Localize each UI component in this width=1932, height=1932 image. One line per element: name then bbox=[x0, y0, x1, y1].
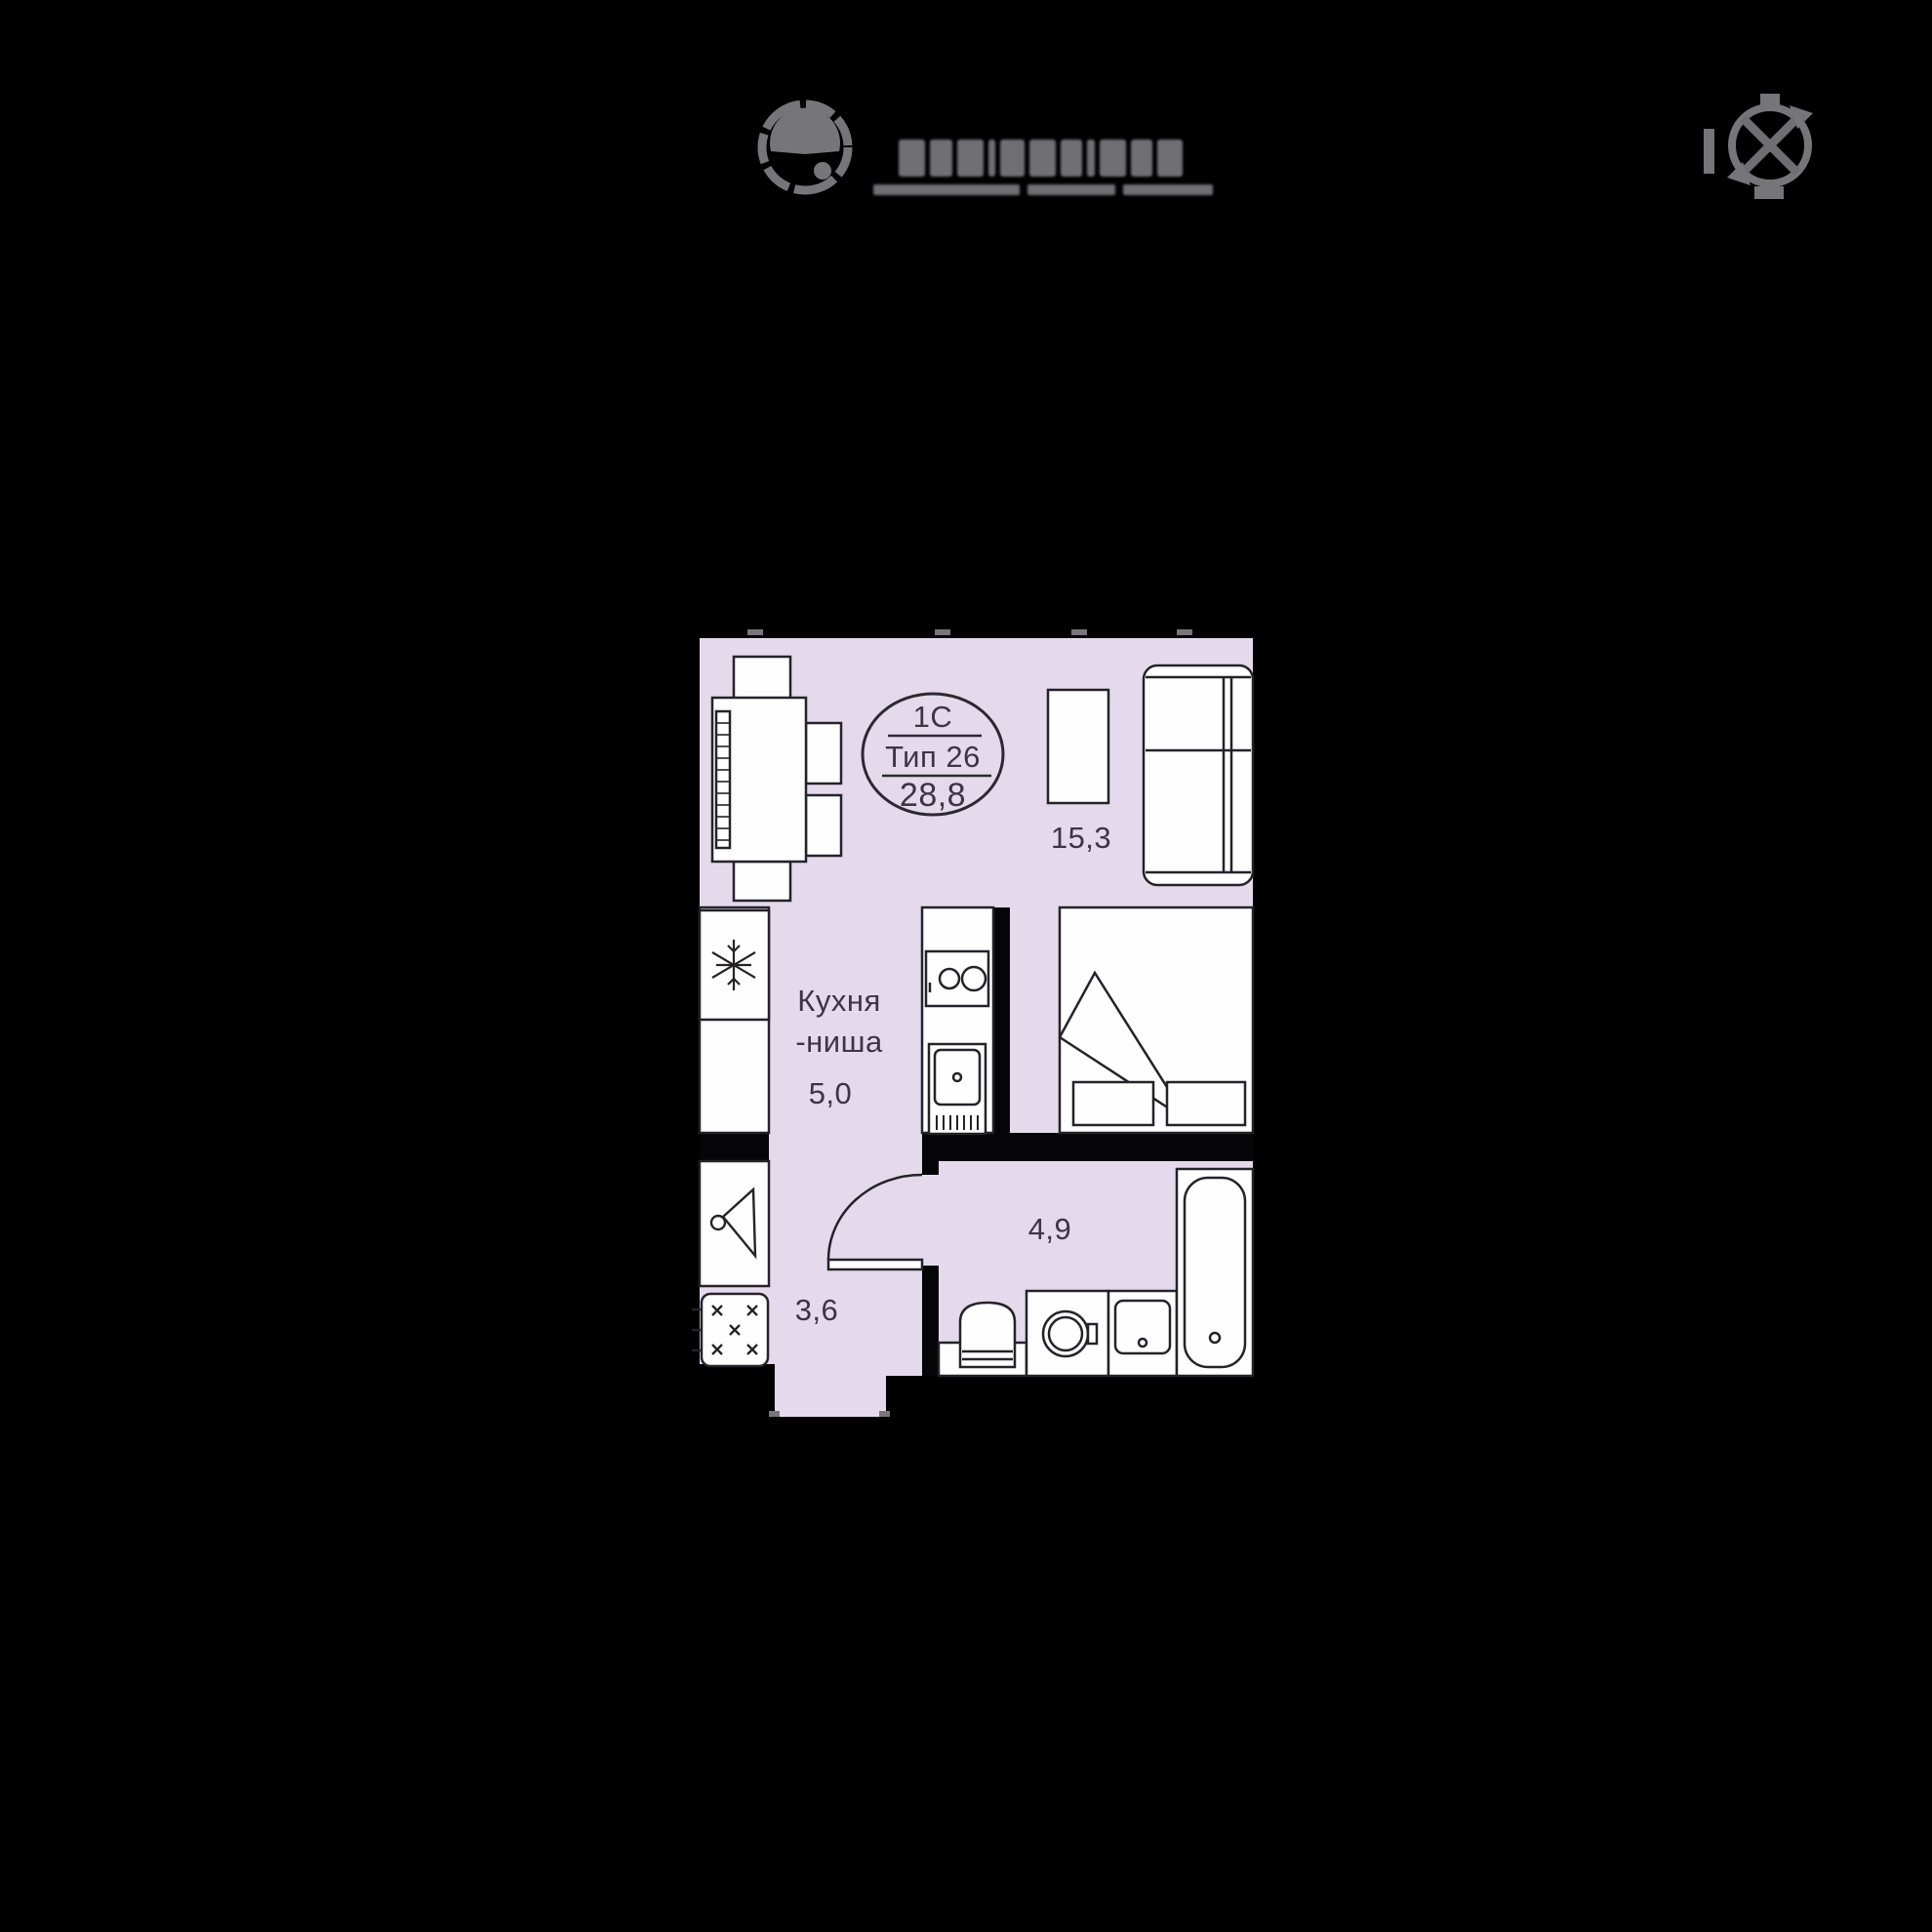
wordmark-tagline-blobs bbox=[873, 184, 1213, 195]
dining-chair-right-2 bbox=[806, 795, 841, 856]
wall-island-right bbox=[993, 907, 1010, 1133]
kitchen-area-label: 5,0 bbox=[809, 1076, 853, 1110]
wardrobe-body bbox=[700, 1161, 769, 1286]
wall-hall-bath bbox=[922, 1266, 939, 1376]
hob-burner-small bbox=[940, 969, 959, 988]
dining-table-hinge bbox=[716, 711, 730, 848]
living-room-area-label: 15,3 bbox=[1051, 821, 1111, 855]
kitchen-island bbox=[922, 907, 993, 1134]
compass-north-mark bbox=[1760, 94, 1780, 106]
dining-chair-top bbox=[734, 657, 790, 700]
compass-side-mark bbox=[1704, 129, 1714, 174]
hall-area-label: 3,6 bbox=[795, 1293, 839, 1327]
wordmark-letter-blobs bbox=[899, 140, 1183, 177]
toilet bbox=[960, 1303, 1015, 1367]
washing-machine-drum-inner bbox=[1049, 1317, 1082, 1350]
door-leaf bbox=[828, 1260, 922, 1269]
nightstand bbox=[1048, 690, 1108, 803]
page-background: 1С Тип 26 28,8 15,3 bbox=[0, 0, 1932, 1932]
hob-burner-large bbox=[962, 967, 986, 990]
window-axis-ticks bbox=[747, 629, 1192, 635]
kitchen-name-line2: -ниша bbox=[795, 1025, 883, 1059]
wall-door-stub bbox=[922, 1161, 939, 1175]
wall-bed-bath bbox=[922, 1133, 1253, 1161]
brand-wordmark bbox=[873, 137, 1225, 199]
x-marked-cabinet bbox=[692, 1294, 768, 1366]
floor-plan: 1С Тип 26 28,8 15,3 bbox=[691, 629, 1262, 1428]
stamp-total-area: 28,8 bbox=[900, 777, 966, 814]
compass-rose-icon bbox=[1700, 94, 1836, 201]
dining-chair-bottom bbox=[734, 862, 790, 901]
brand-emblem-icon bbox=[751, 93, 859, 202]
wall-counter-stub bbox=[700, 1133, 769, 1161]
bed-pillow-right bbox=[1167, 1082, 1245, 1125]
hall-wardrobe bbox=[700, 1161, 769, 1286]
bathtub-drain bbox=[1210, 1333, 1220, 1343]
sofa bbox=[1144, 665, 1253, 885]
kitchen-name-line1: Кухня bbox=[797, 984, 880, 1018]
bed-pillow-left bbox=[1073, 1082, 1153, 1125]
bed bbox=[1060, 907, 1253, 1133]
compass-south-mark bbox=[1754, 186, 1784, 199]
emblem-dot bbox=[814, 162, 831, 180]
sofa-body bbox=[1144, 665, 1253, 885]
stamp-type-name: Тип 26 bbox=[885, 740, 981, 774]
washing-machine-handle bbox=[1088, 1324, 1097, 1344]
bath-area-label: 4,9 bbox=[1028, 1212, 1072, 1246]
kitchen-sink-drain bbox=[953, 1073, 961, 1081]
dining-chair-right-1 bbox=[806, 723, 841, 784]
bathroom-sink-drain bbox=[1139, 1339, 1147, 1347]
kitchen-sink-drainer-lines bbox=[937, 1115, 978, 1130]
stamp-type-code: 1С bbox=[913, 700, 953, 734]
